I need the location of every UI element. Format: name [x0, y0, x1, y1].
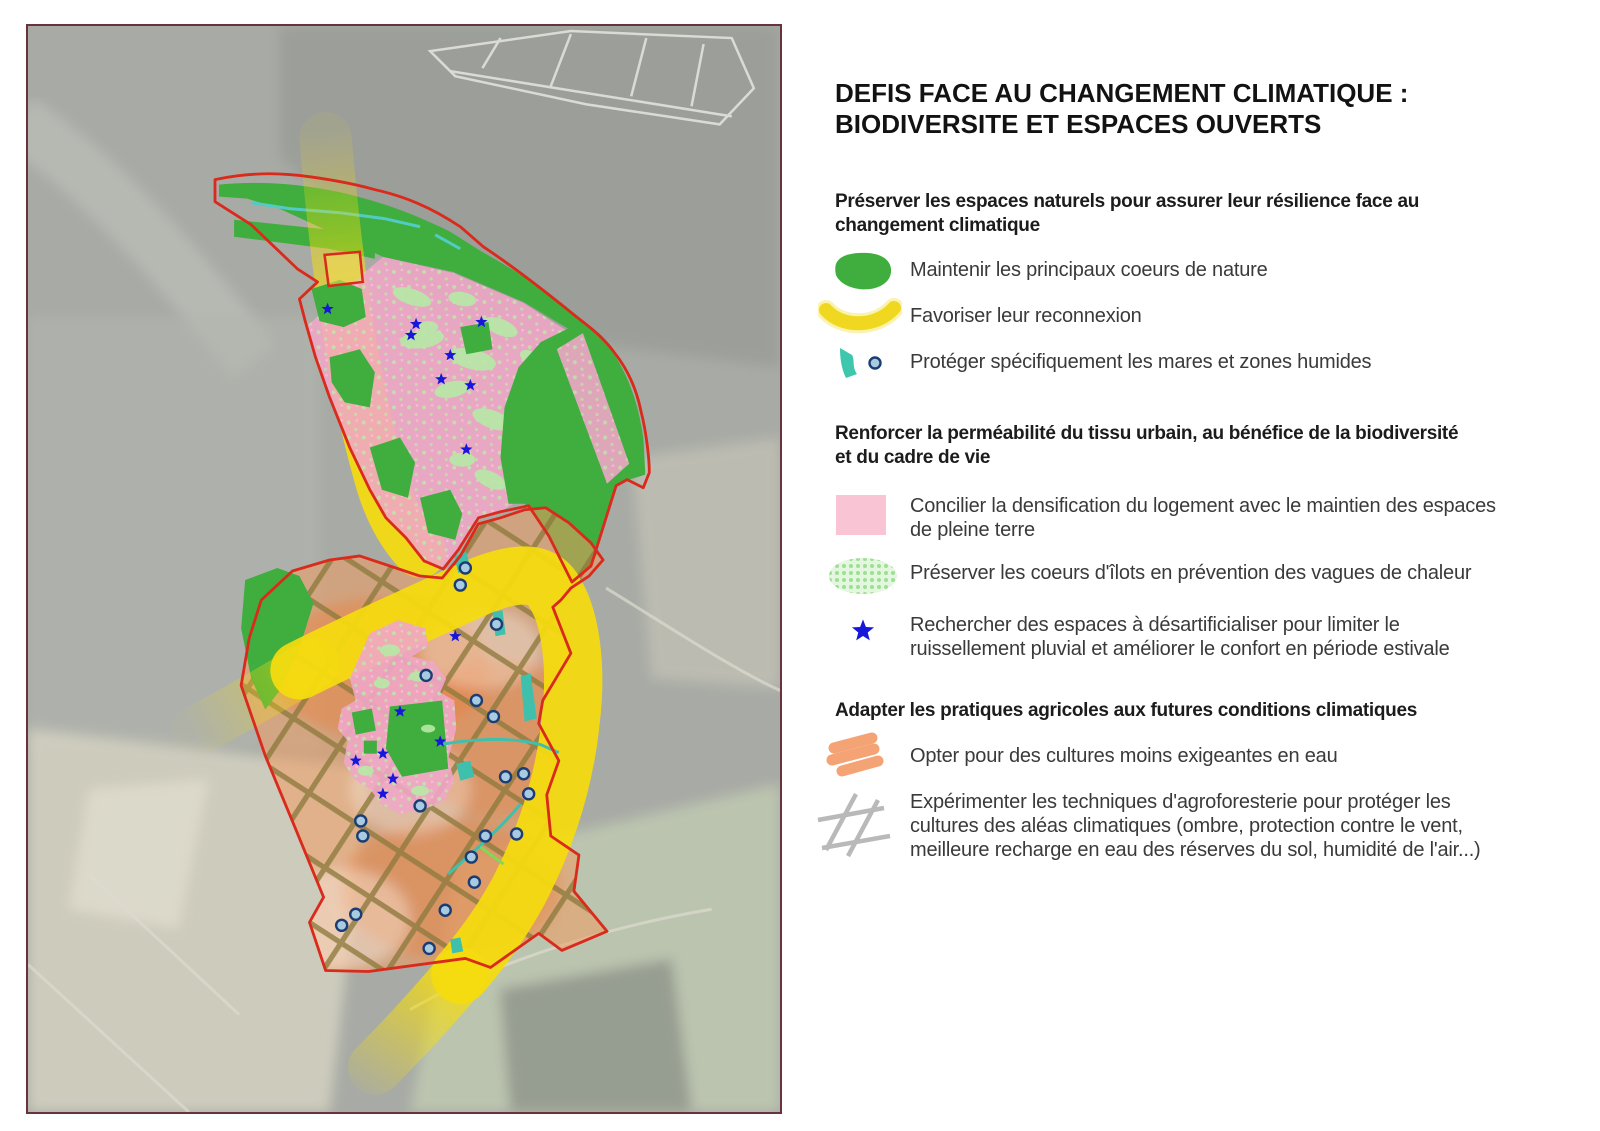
legend-item-label: Opter pour des cultures moins exigeantes…: [910, 744, 1550, 768]
poster-page: ;: [0, 0, 1600, 1131]
nature-core-icon: [830, 248, 896, 296]
reconnection-corridor-icon: [818, 298, 902, 340]
desartificialise-star-icon: [846, 614, 880, 648]
legend-item-label: Protéger spécifiquement les mares et zon…: [910, 350, 1530, 374]
wetland-pond-icon: [832, 344, 892, 386]
low-water-crops-icon: [822, 730, 888, 778]
legend-item-label: Préserver les coeurs d'îlots en préventi…: [910, 561, 1550, 585]
heat-island-core-icon: [827, 556, 899, 596]
pink-density-icon: [836, 495, 886, 535]
section-heading-adapter: Adapter les pratiques agricoles aux futu…: [835, 699, 1540, 723]
section-heading-renforcer: Renforcer la perméabilité du tissu urbai…: [835, 422, 1540, 470]
legend-item-label: Rechercher des espaces à désartificialis…: [910, 613, 1550, 661]
parcel-outline: [325, 252, 363, 286]
aerial-map: ;: [26, 24, 782, 1114]
map-canvas: ;: [28, 26, 780, 1112]
legend-item-label: Concilier la densification du logement a…: [910, 494, 1550, 542]
section-heading-preserver: Préserver les espaces naturels pour assu…: [835, 190, 1540, 238]
agroforestry-hatch-icon: [810, 786, 896, 868]
legend-item-label: Maintenir les principaux coeurs de natur…: [910, 258, 1530, 282]
legend-item-label: Favoriser leur reconnexion: [910, 304, 1530, 328]
page-title: DEFIS FACE AU CHANGEMENT CLIMATIQUE : BI…: [835, 78, 1515, 140]
legend-item-label: Expérimenter les techniques d'agroforest…: [910, 790, 1560, 862]
